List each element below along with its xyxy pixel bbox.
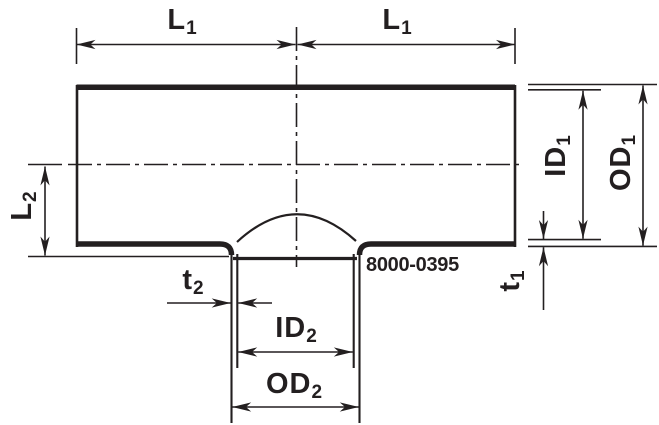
technical-drawing: L1 L1 L2 ID1 OD1 t1 t2 ID2 OD2 8000-0395 bbox=[0, 0, 659, 425]
body-bottom-outline-left bbox=[77, 244, 232, 255]
id2-label: ID2 bbox=[275, 312, 317, 347]
l2-label: L2 bbox=[6, 191, 41, 220]
t1-label: t1 bbox=[494, 270, 529, 292]
l1-left-label: L1 bbox=[167, 4, 197, 39]
t2-label: t2 bbox=[182, 264, 203, 299]
id1-label: ID1 bbox=[540, 135, 575, 177]
od1-label: OD1 bbox=[605, 135, 640, 192]
drawing-svg: L1 L1 L2 ID1 OD1 t1 t2 ID2 OD2 8000-0395 bbox=[0, 0, 659, 425]
l1-right-label: L1 bbox=[382, 4, 412, 39]
od2-label: OD2 bbox=[266, 368, 322, 403]
part-number-label: 8000-0395 bbox=[366, 254, 459, 276]
